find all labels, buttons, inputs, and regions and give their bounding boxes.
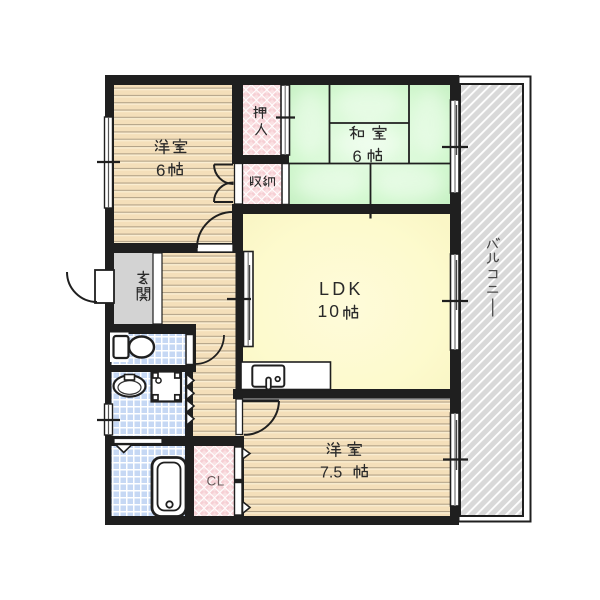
svg-text:10: 10 — [318, 301, 341, 321]
svg-text:CL: CL — [207, 474, 225, 489]
svg-text:6: 6 — [156, 161, 165, 180]
svg-text:7.5: 7.5 — [320, 465, 342, 482]
svg-text:6: 6 — [353, 148, 362, 166]
svg-text:LDK: LDK — [319, 279, 364, 299]
